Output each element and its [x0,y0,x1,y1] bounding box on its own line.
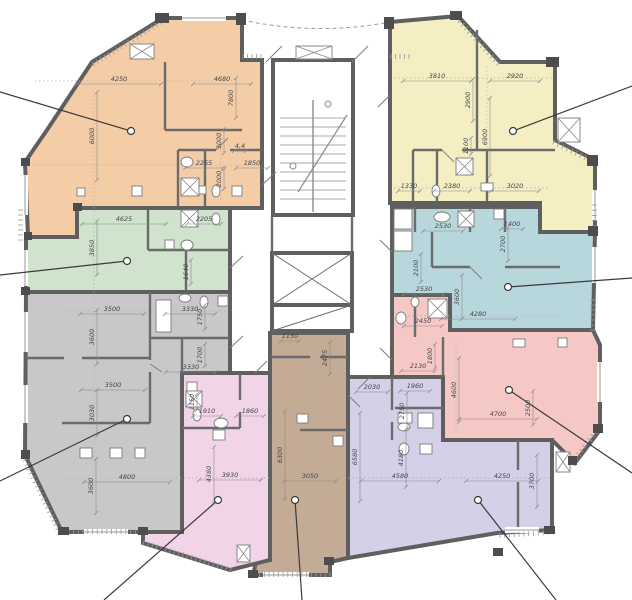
dimension-label: 2750 [398,403,406,420]
fixture-rect [110,448,122,458]
wall-pier [546,57,559,67]
dimension-label: 3500 [105,381,122,389]
dimension-label: 2900 [464,92,472,109]
dimension-label: 3810 [429,72,446,80]
dimension-label: 6580 [351,449,359,466]
dimension-label: 3700 [528,473,536,490]
dimension-label: 4580 [392,472,409,480]
sanitary-icon [214,418,228,428]
dimension-label: 2205 [196,215,213,223]
callout-origin-icon-unit-mid-right [505,284,512,291]
dimension-label: 4700 [490,410,507,418]
fixture-rect [213,430,225,440]
dimension-label: 3030 [88,405,96,422]
dimension-label: 2130 [410,362,427,370]
dimension-label: 2255 [196,159,213,167]
fixture-rect [218,296,228,306]
fixture-rect [77,188,85,196]
dimension-label: 3600 [453,289,461,306]
dimension-label: 2030 [364,383,381,391]
fixture-rect [165,240,174,249]
dimension-label: 6000 [88,128,96,145]
dimension-label: 3850 [88,240,96,257]
fixture-rect [187,382,197,392]
dimension-label: 2530 [435,222,452,230]
dimension-label: 4680 [214,75,231,83]
fixture-rect [394,231,412,251]
dimension-label: 1100 [462,138,470,155]
wall-pier [587,155,598,166]
callout-origin-icon-unit-top-right [510,128,517,135]
dimension-label: 7800 [227,90,235,107]
fixture-rect [80,448,92,458]
floor-plan: 425046807800600030002255185020004,446252… [0,0,632,600]
wall-pier [384,17,394,29]
callout-origin-icon-unit-mid-left [124,258,131,265]
dimension-label: 2380 [444,182,461,190]
dimension-label: 1800 [426,348,434,365]
dimension-label: 1860 [242,407,259,415]
wall-pier [493,548,503,556]
wall-pier [24,232,32,240]
sanitary-icon [181,240,193,250]
wall-pier [155,13,169,23]
fixture-rect [394,209,412,229]
dimension-label: 1640 [182,264,190,281]
fixture-rect [135,448,145,458]
dimension-label: 1150 [282,332,299,340]
fixture-rect [333,436,343,446]
dimension-label: 3330 [183,363,200,371]
wall-pier [58,527,69,535]
dimension-label: 4250 [111,75,128,83]
dimension-label: 6900 [481,129,489,146]
sanitary-icon [179,294,191,302]
sanitary-icon [396,312,406,324]
dimension-label: 1330 [401,182,418,190]
wall-pier [236,13,246,25]
wall-pier [21,158,30,166]
sanitary-icon [411,297,419,307]
dimension-label: 2450 [415,317,432,325]
callout-origin-icon-unit-bottom-left [124,416,131,423]
floor-plan-svg: 425046807800600030002255185020004,446252… [0,0,632,600]
dimension-label: 4625 [116,215,133,223]
dimension-label: 4600 [450,382,458,399]
callout-origin-icon-unit-top-left [128,128,135,135]
dimension-label: 6300 [276,447,284,464]
dimension-label: 3600 [88,329,96,346]
dimension-label: 3600 [87,478,95,495]
dimension-label: 3930 [222,471,239,479]
fixture-rect [297,414,308,423]
wall-pier [21,450,30,459]
dimension-label: 3050 [302,472,319,480]
dimension-label: 1750 [196,309,204,326]
callout-origin-icon-unit-bottom-center [292,497,299,504]
dimension-label: 4380 [205,466,213,483]
sanitary-icon [212,213,220,225]
callout-origin-icon-unit-bottom-center-left [215,497,222,504]
wall-pier [138,527,148,535]
dimension-label: 1910 [199,407,216,415]
dimension-label: 2100 [412,260,420,277]
dimension-label: 2700 [499,236,507,253]
callout-origin-icon-unit-bottom-right [475,497,482,504]
sanitary-icon [398,423,410,431]
wall-pier [588,226,598,236]
dimension-label: 1400 [504,220,521,228]
dimension-label: 2920 [507,72,524,80]
dimension-label: 3020 [507,182,524,190]
wall-pier [568,456,577,465]
dimension-label: 3000 [215,133,223,150]
fixture-rect [132,186,142,196]
dimension-label: 3500 [104,305,121,313]
fixture-rect [513,339,525,347]
dimension-label: 2475 [321,350,329,367]
fixture-rect [418,413,433,428]
fixture-rect [481,183,493,191]
wall-pier [544,526,555,534]
dimension-label: 1700 [196,347,204,364]
dimension-label: 2530 [416,285,433,293]
dimension-label: 4,4 [235,142,245,150]
fixture-rect [494,209,504,219]
dimension-label: 1850 [244,159,261,167]
dimension-label: 4180 [397,450,405,467]
dimension-label: 2000 [215,171,223,188]
wall-pier [248,570,258,578]
fixture-rect [420,444,432,454]
sanitary-icon [434,212,450,222]
dimension-label: 4800 [119,473,136,481]
wall-pier [324,557,334,565]
fixture-rect [558,338,567,347]
dimension-label: 4250 [494,472,511,480]
wall-pier [450,11,462,20]
wall-pier [73,203,82,211]
wall-pier [593,424,603,433]
callout-origin-icon-unit-right-lower [506,387,513,394]
dimension-label: 4280 [470,310,487,318]
sanitary-icon [181,157,193,167]
dimension-label: 1150 [188,394,196,411]
wall-pier [21,287,30,295]
fixture-rect [232,186,242,196]
dimension-label: 1960 [407,382,424,390]
